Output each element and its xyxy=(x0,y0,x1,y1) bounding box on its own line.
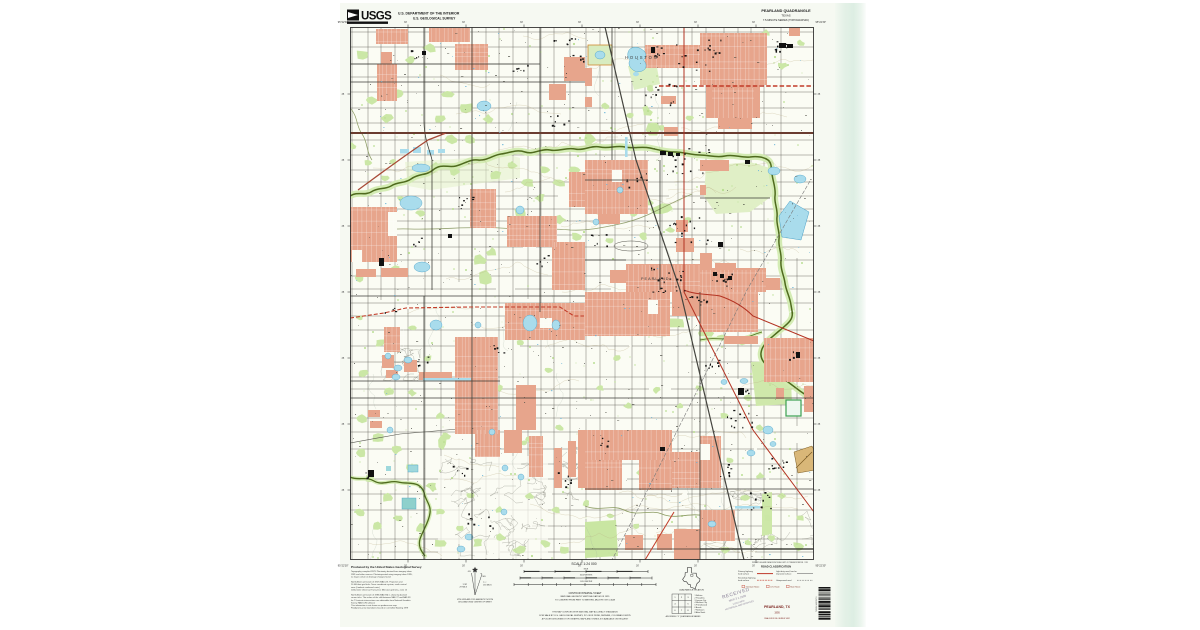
svg-text:hard surface: hard surface xyxy=(738,574,750,576)
svg-text:Produced by the United States: Produced by the United States Geological… xyxy=(351,565,422,569)
svg-text:95°22′30″: 95°22′30″ xyxy=(338,565,349,568)
svg-text:QUADRANGLE LOCATION: QUADRANGLE LOCATION xyxy=(679,589,704,592)
svg-text:ROAD CLASSIFICATION: ROAD CLASSIFICATION xyxy=(761,565,791,569)
svg-text:FOR SALE BY U.S. GEOLOGICAL SU: FOR SALE BY U.S. GEOLOGICAL SURVEY, P.O.… xyxy=(539,614,631,617)
svg-text:1000 METERS: 1000 METERS xyxy=(580,575,593,577)
svg-text:PEARLAND, TX: PEARLAND, TX xyxy=(764,605,791,609)
svg-text:1995: 1995 xyxy=(774,612,780,615)
svg-text:corner ticks. The values of th: corner ticks. The values of the shift be… xyxy=(351,596,411,599)
svg-text:Topography compiled 1978. Plan: Topography compiled 1978. Planimetry der… xyxy=(351,570,412,573)
svg-text:95°22′30″: 95°22′30″ xyxy=(816,565,827,568)
svg-text:U.S. Route: U.S. Route xyxy=(770,586,779,589)
svg-text:TO CONVERT FROM FEET TO METERS: TO CONVERT FROM FEET TO METERS, MULTIPLY… xyxy=(555,599,616,601)
svg-text:U.S. GEOLOGICAL SURVEY: U.S. GEOLOGICAL SURVEY xyxy=(413,17,456,21)
svg-text:29 MILS: 29 MILS xyxy=(460,587,468,589)
svg-text:CONTOUR INTERVAL 5 FEET: CONTOUR INTERVAL 5 FEET xyxy=(569,592,602,595)
svg-text:Light-duty road, hard or: Light-duty road, hard or xyxy=(776,570,797,573)
svg-text:MILE: MILE xyxy=(584,568,589,570)
svg-text:Floodprone-area boundaries bas: Floodprone-area boundaries based on cont… xyxy=(351,607,409,610)
svg-text:PEARLAND QUADRANGLE: PEARLAND QUADRANGLE xyxy=(761,9,811,13)
svg-text:hard surface: hard surface xyxy=(738,580,750,582)
svg-text:133 MILS: 133 MILS xyxy=(483,585,492,587)
svg-text:1000-meter Universal Transvers: 1000-meter Universal Transverse Mercator… xyxy=(351,588,408,591)
svg-text:N2939–W9515/7.5: N2939–W9515/7.5 xyxy=(816,597,818,612)
svg-text:USGS: USGS xyxy=(361,11,392,23)
svg-text:ADJOINING 7.5′ QUADRANGLE NAME: ADJOINING 7.5′ QUADRANGLE NAMES xyxy=(666,615,702,618)
svg-text:THIS MAP COMPLIES WITH NATIONA: THIS MAP COMPLIES WITH NATIONAL MAP ACCU… xyxy=(552,611,618,614)
svg-text:zone (Lambert conformal conic): zone (Lambert conformal conic) xyxy=(351,586,380,589)
svg-text:1 KILOMETER: 1 KILOMETER xyxy=(580,581,593,583)
svg-text:State Route: State Route xyxy=(790,586,800,589)
svg-text:10 000-foot grid ticks: Texas: 10 000-foot grid ticks: Texas coordinate… xyxy=(351,583,407,586)
svg-text:PEARLAND: PEARLAND xyxy=(641,277,669,281)
svg-text:SCALE 1:24 000: SCALE 1:24 000 xyxy=(571,562,596,566)
svg-text:Unimproved road: Unimproved road xyxy=(776,580,791,582)
svg-text:A FOLDER DESCRIBING TOPOGRAPHI: A FOLDER DESCRIBING TOPOGRAPHIC MAPS AND… xyxy=(542,617,629,620)
svg-text:no major culture or drainage c: no major culture or drainage changes fou… xyxy=(351,575,391,578)
svg-text:North American Datum of 1983 (: North American Datum of 1983 (NAD 83) is… xyxy=(351,594,407,597)
svg-text:North American Datum of 1927 (: North American Datum of 1927 (NAD 27). P… xyxy=(351,581,402,584)
svg-text:NATIONAL GEODETIC VERTICAL DAT: NATIONAL GEODETIC VERTICAL DATUM OF 1929 xyxy=(561,595,611,598)
svg-text:1981 and other sources. Photoi: 1981 and other sources. Photoinspected u… xyxy=(351,573,413,576)
svg-text:95°22′30″: 95°22′30″ xyxy=(338,21,349,24)
svg-text:8 Alvin North: 8 Alvin North xyxy=(695,611,706,614)
svg-text:UTM GRID AND 1995 MAGNETIC NOR: UTM GRID AND 1995 MAGNETIC NORTH xyxy=(457,598,494,601)
svg-text:This information is not shown: This information is not shown on predece… xyxy=(351,604,398,607)
svg-text:95°22′30″: 95°22′30″ xyxy=(816,21,827,24)
svg-text:HOUSTON: HOUSTON xyxy=(625,55,658,60)
svg-text:improved surface: improved surface xyxy=(776,574,792,576)
svg-text:U.S. DEPARTMENT OF THE INTERIO: U.S. DEPARTMENT OF THE INTERIOR xyxy=(398,12,460,16)
svg-text:7.5-MINUTE SERIES (TOPOGRAPHIC: 7.5-MINUTE SERIES (TOPOGRAPHIC) xyxy=(763,18,809,22)
svg-text:DMA 6248 III SE–SERIES V882: DMA 6248 III SE–SERIES V882 xyxy=(764,617,790,620)
svg-text:Survey NADCON software: Survey NADCON software xyxy=(351,601,376,604)
svg-text:TEXAS: TEXAS xyxy=(781,14,790,18)
svg-text:for 7.5-minute intersections a: for 7.5-minute intersections are obtaina… xyxy=(351,599,411,602)
svg-text:DECLINATION AT CENTER OF SHEET: DECLINATION AT CENTER OF SHEET xyxy=(458,601,492,604)
